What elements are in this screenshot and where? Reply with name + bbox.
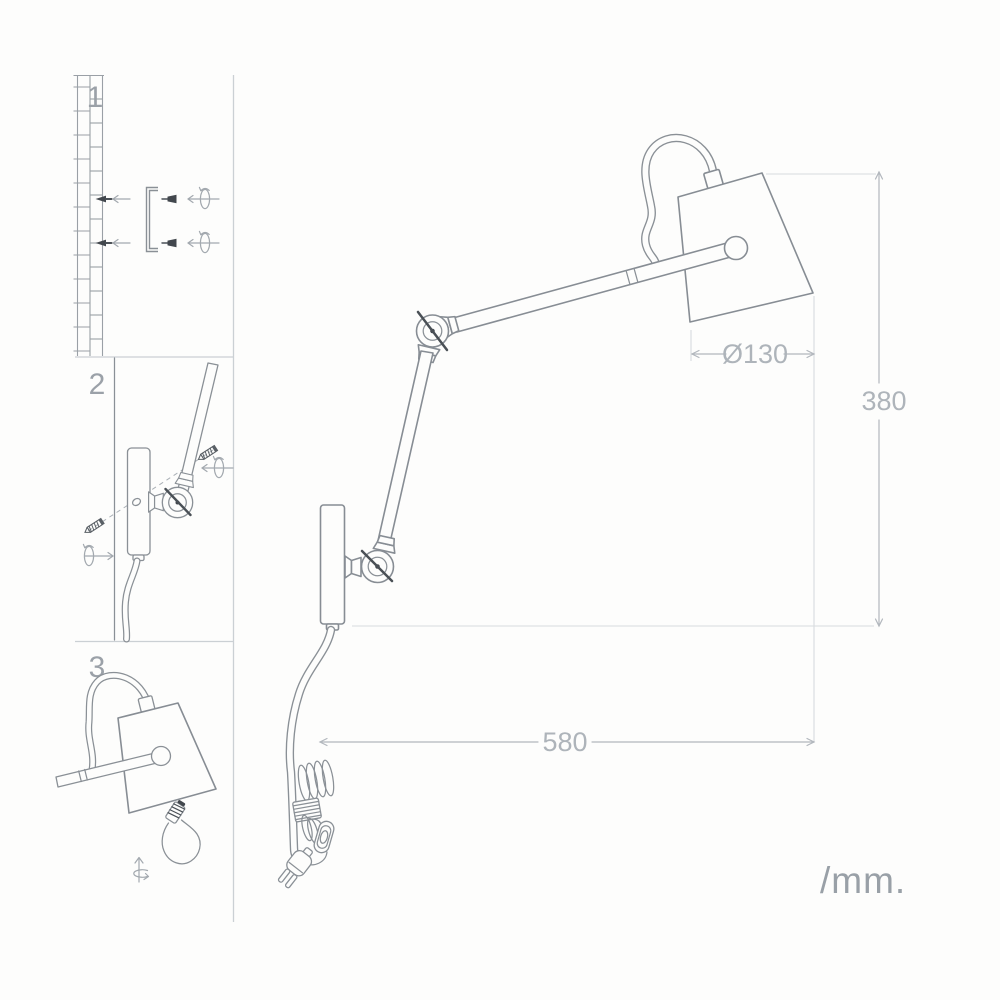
mounting-bracket — [147, 188, 159, 252]
cable-coil — [292, 759, 335, 864]
joint-collar — [345, 556, 361, 578]
instruction-panels: 1 — [56, 75, 234, 922]
screw-rotation-icon — [188, 187, 219, 208]
power-cord — [125, 561, 137, 639]
step-3-panel: 3 — [56, 651, 216, 882]
bulb-rotation-icon — [134, 858, 149, 883]
step-1-panel: 1 — [74, 76, 220, 357]
wall-anchor-icon — [96, 196, 112, 247]
screw-rotation-icon — [188, 231, 219, 252]
brick-wall-section — [74, 76, 105, 357]
dimension-shade-diameter: Ø130 — [692, 339, 814, 369]
wall-swivel-joint — [362, 551, 394, 583]
insert-direction-arrow-icon — [113, 196, 130, 247]
dimension-width: 580 — [320, 727, 814, 757]
screw-icon — [83, 518, 105, 535]
light-bulb — [162, 798, 200, 863]
brick-joints-left — [74, 87, 91, 351]
screw-rotation-icon — [202, 456, 233, 477]
arm-knob — [152, 747, 171, 766]
main-drawing — [275, 138, 876, 890]
screw-rotation-icon — [83, 544, 113, 565]
units-label: /mm. — [820, 860, 906, 901]
diagram-canvas: 1 — [0, 0, 1000, 1000]
step-1-number: 1 — [87, 81, 104, 114]
width-label: 580 — [542, 727, 587, 757]
arm-knob — [725, 237, 748, 260]
screw-icon — [162, 195, 177, 247]
wall-plate — [321, 505, 345, 624]
step-2-panel: 2 — [83, 358, 233, 640]
dimension-height: 380 — [861, 172, 906, 626]
brick-joints-right — [90, 99, 103, 339]
lamp-arm — [178, 363, 218, 491]
step-2-number: 2 — [89, 368, 106, 401]
shade-diameter-label: Ø130 — [722, 339, 788, 369]
joint-collar — [149, 492, 164, 512]
wall-plate — [128, 448, 151, 555]
swivel-joint — [162, 487, 192, 517]
lower-arm — [377, 351, 433, 547]
height-label: 380 — [861, 386, 906, 416]
lamp-technical-drawing: 1 — [0, 0, 1000, 1000]
